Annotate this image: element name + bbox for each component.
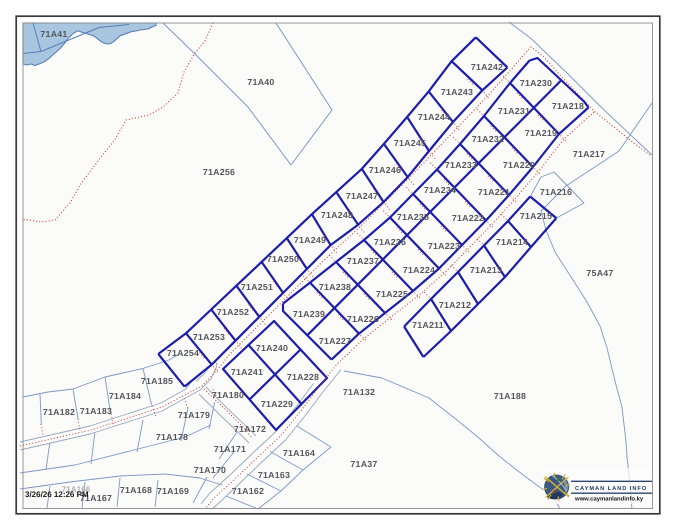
- svg-text:71A236: 71A236: [374, 237, 406, 247]
- svg-text:71A162: 71A162: [232, 486, 264, 496]
- svg-text:71A224: 71A224: [403, 265, 435, 275]
- svg-text:71A247: 71A247: [346, 191, 378, 201]
- svg-text:71A226: 71A226: [347, 314, 379, 324]
- svg-text:CAYMAN LAND INFO: CAYMAN LAND INFO: [575, 486, 647, 492]
- svg-text:71A250: 71A250: [267, 254, 299, 264]
- svg-text:3/26/26 12:26 PM: 3/26/26 12:26 PM: [25, 490, 89, 499]
- svg-text:71A168: 71A168: [120, 485, 152, 495]
- svg-text:71A225: 71A225: [376, 289, 408, 299]
- svg-text:71A215: 71A215: [520, 211, 552, 221]
- svg-text:71A211: 71A211: [412, 320, 444, 330]
- svg-text:71A221: 71A221: [478, 187, 510, 197]
- svg-text:71A240: 71A240: [256, 343, 288, 353]
- svg-text:71A170: 71A170: [194, 465, 226, 475]
- svg-text:71A40: 71A40: [247, 77, 274, 87]
- svg-text:71A241: 71A241: [231, 367, 263, 377]
- svg-text:71A184: 71A184: [109, 391, 141, 401]
- svg-text:71A222: 71A222: [452, 213, 484, 223]
- svg-text:71A232: 71A232: [472, 134, 504, 144]
- svg-text:71A179: 71A179: [178, 410, 210, 420]
- svg-text:71A180: 71A180: [212, 390, 244, 400]
- svg-text:71A163: 71A163: [258, 470, 290, 480]
- svg-text:71A172: 71A172: [234, 424, 266, 434]
- svg-text:71A248: 71A248: [321, 210, 353, 220]
- svg-text:71A212: 71A212: [439, 300, 471, 310]
- svg-text:75A47: 75A47: [586, 268, 613, 278]
- svg-text:71A132: 71A132: [343, 387, 375, 397]
- svg-text:71A218: 71A218: [552, 101, 584, 111]
- svg-text:71A169: 71A169: [157, 486, 189, 496]
- svg-text:71A246: 71A246: [369, 165, 401, 175]
- svg-text:71A254: 71A254: [167, 348, 199, 358]
- svg-text:71A37: 71A37: [350, 459, 377, 469]
- svg-text:71A243: 71A243: [441, 87, 473, 97]
- svg-text:71A238: 71A238: [319, 282, 351, 292]
- svg-text:71A219: 71A219: [525, 128, 557, 138]
- svg-text:71A249: 71A249: [294, 235, 326, 245]
- svg-text:71A41: 71A41: [40, 29, 67, 39]
- svg-text:71A220: 71A220: [503, 160, 535, 170]
- svg-text:71A216: 71A216: [540, 187, 572, 197]
- svg-text:71A227: 71A227: [319, 336, 351, 346]
- svg-text:www.caymanlandinfo.ky: www.caymanlandinfo.ky: [574, 496, 644, 503]
- svg-text:71A164: 71A164: [283, 448, 315, 458]
- svg-text:71A183: 71A183: [80, 406, 112, 416]
- svg-text:71A178: 71A178: [156, 432, 188, 442]
- svg-text:71A252: 71A252: [217, 307, 249, 317]
- svg-text:71A251: 71A251: [241, 282, 273, 292]
- svg-text:71A217: 71A217: [573, 149, 605, 159]
- svg-text:71A188: 71A188: [494, 391, 526, 401]
- svg-text:71A231: 71A231: [498, 106, 530, 116]
- svg-text:71A228: 71A228: [287, 372, 319, 382]
- svg-text:71A171: 71A171: [214, 444, 246, 454]
- svg-text:71A235: 71A235: [397, 212, 429, 222]
- svg-text:71A230: 71A230: [520, 78, 552, 88]
- svg-text:71A237: 71A237: [347, 256, 379, 266]
- svg-text:71A256: 71A256: [203, 167, 235, 177]
- svg-text:71A185: 71A185: [141, 376, 173, 386]
- svg-text:71A233: 71A233: [445, 160, 477, 170]
- svg-text:71A229: 71A229: [261, 399, 293, 409]
- svg-text:71A214: 71A214: [496, 237, 528, 247]
- svg-text:71A213: 71A213: [470, 265, 502, 275]
- svg-text:71A182: 71A182: [43, 407, 75, 417]
- svg-text:71A253: 71A253: [193, 332, 225, 342]
- svg-text:71A245: 71A245: [394, 138, 426, 148]
- svg-text:71A234: 71A234: [424, 185, 456, 195]
- svg-text:71A223: 71A223: [428, 241, 460, 251]
- svg-text:71A244: 71A244: [418, 112, 450, 122]
- svg-text:71A239: 71A239: [293, 309, 325, 319]
- svg-text:71A242: 71A242: [471, 62, 503, 72]
